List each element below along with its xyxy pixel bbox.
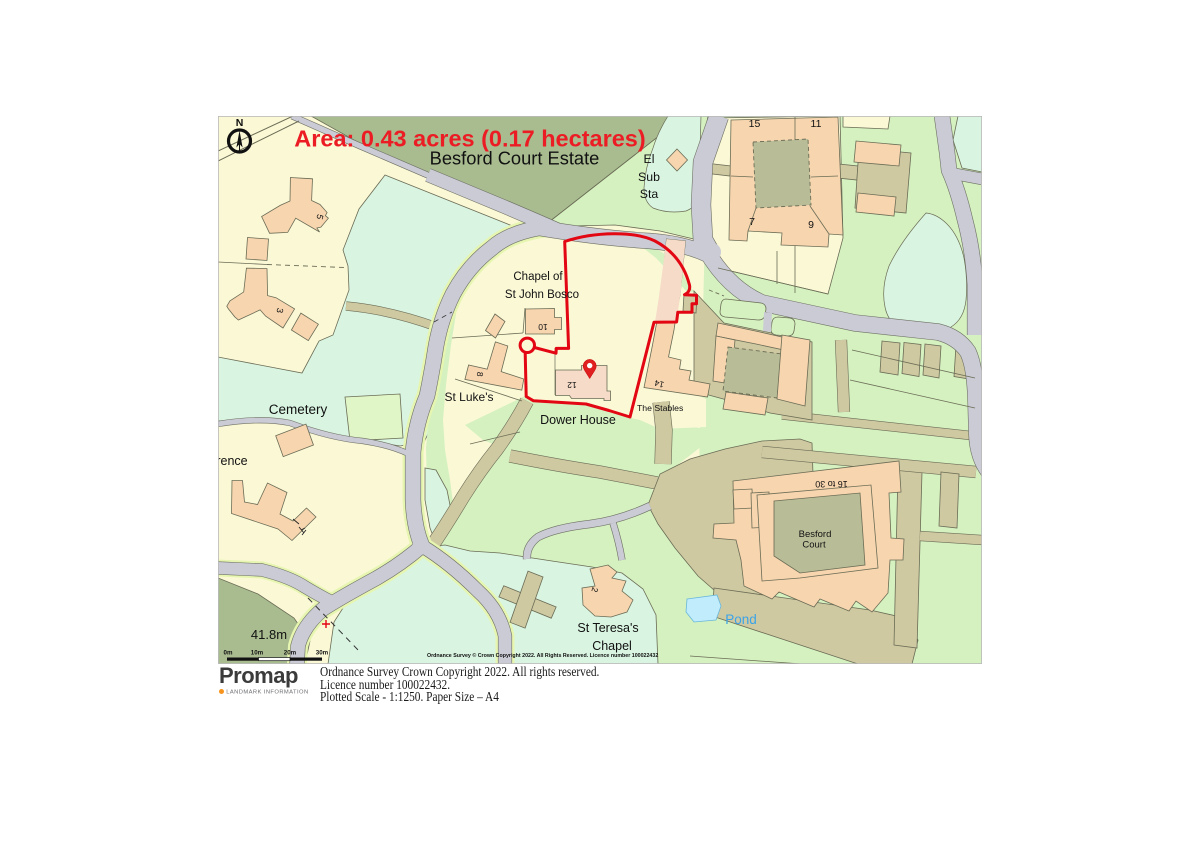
svg-text:Chapel of: Chapel of: [513, 271, 563, 283]
svg-text:12: 12: [567, 380, 577, 390]
svg-text:30m: 30m: [316, 650, 329, 657]
svg-text:16 to 30: 16 to 30: [815, 479, 848, 489]
svg-text:St Luke's: St Luke's: [445, 390, 494, 404]
svg-text:Dower House: Dower House: [540, 413, 616, 427]
svg-text:Court: Court: [802, 540, 826, 551]
svg-text:Besford: Besford: [799, 529, 832, 540]
svg-text:10: 10: [538, 322, 548, 332]
svg-text:Sub: Sub: [638, 170, 660, 184]
svg-text:11: 11: [811, 118, 822, 130]
svg-text:St Teresa's: St Teresa's: [577, 621, 638, 635]
svg-text:Chapel: Chapel: [592, 639, 632, 653]
svg-text:The Stables: The Stables: [637, 403, 684, 413]
svg-text:20m: 20m: [284, 650, 297, 657]
svg-text:Sta: Sta: [640, 187, 659, 201]
svg-text:0m: 0m: [224, 650, 233, 657]
svg-text:7: 7: [749, 216, 755, 228]
svg-text:Pond: Pond: [725, 612, 757, 627]
svg-text:9: 9: [808, 219, 814, 231]
svg-text:10m: 10m: [251, 650, 264, 657]
svg-text:St John Bosco: St John Bosco: [505, 289, 579, 301]
svg-text:Cemetery: Cemetery: [269, 402, 328, 417]
svg-text:41.8m: 41.8m: [251, 627, 287, 642]
svg-text:rence: rence: [218, 454, 248, 468]
svg-text:Ordnance Survey © Crown Copyri: Ordnance Survey © Crown Copyright 2022. …: [427, 652, 658, 659]
svg-text:15: 15: [749, 118, 761, 130]
svg-text:Besford Court Estate: Besford Court Estate: [430, 148, 600, 169]
svg-text:El: El: [644, 152, 655, 166]
svg-text:N: N: [236, 117, 244, 129]
